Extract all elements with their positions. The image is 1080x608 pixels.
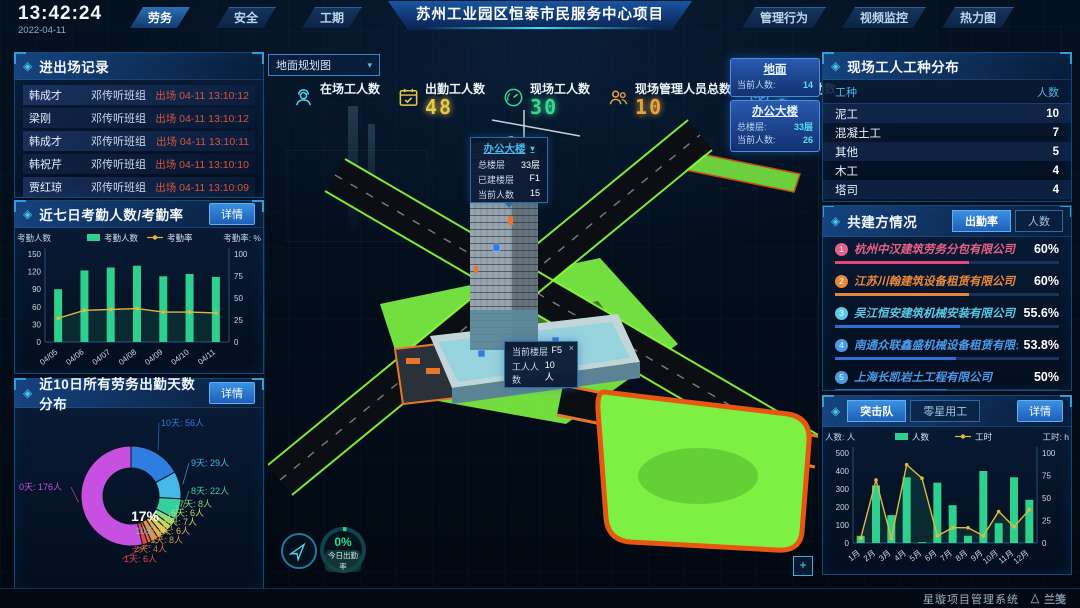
diamond-icon: ◈: [831, 404, 840, 418]
worker-type-table: 泥工10混凝土工7其他5木工4塔司4: [823, 104, 1071, 199]
system-name: 星璇项目管理系统: [923, 591, 1019, 607]
building-popup[interactable]: 办公大楼 ▾ 总楼层33层 已建楼层F1 当前人数15: [470, 137, 548, 203]
svg-text:04/11: 04/11: [196, 347, 217, 366]
fullscreen-expand-icon[interactable]: +: [793, 556, 813, 576]
partner-name: 吴江恒安建筑机械安装有限公司: [854, 305, 1018, 321]
svg-text:8月: 8月: [954, 548, 969, 563]
table-row: 其他5: [823, 142, 1071, 161]
teams-tab-突击队[interactable]: 突击队: [847, 400, 906, 422]
panel-header: ◈ 突击队零星用工 详情: [823, 396, 1071, 427]
worker-count: 4: [1053, 165, 1059, 177]
calendar-check-icon: [397, 86, 420, 109]
progress-fill: [835, 389, 947, 391]
panel-teams-chart: ◈ 突击队零星用工 详情 01002003004005000255075100人…: [822, 395, 1072, 575]
partner-value: 53.8%: [1024, 338, 1059, 352]
progress-track: [835, 357, 1059, 360]
info-row: 当前人数:14: [737, 79, 813, 92]
progress-fill: [835, 293, 969, 296]
record-name: 贾红琼: [29, 179, 91, 195]
field-shade: [638, 448, 758, 504]
table-row: 塔司4: [823, 180, 1071, 199]
svg-text:500: 500: [836, 449, 850, 458]
rank-badge: 2: [835, 275, 848, 288]
svg-text:100: 100: [234, 250, 248, 259]
floor-popup[interactable]: × 当前楼层F5 工人人数10人: [504, 341, 578, 388]
svg-text:50: 50: [234, 294, 243, 303]
svg-text:04/08: 04/08: [117, 347, 139, 367]
svg-text:75: 75: [234, 272, 243, 281]
svg-text:0: 0: [845, 539, 850, 548]
footer-bar: 星璇项目管理系统 兰笺: [0, 588, 1080, 608]
svg-text:100: 100: [1042, 449, 1056, 458]
panel-header: ◈ 近七日考勤人数/考勤率 详情: [15, 201, 263, 228]
record-event: 出场 04-11 13:10:10: [155, 157, 249, 172]
worker-type: 混凝土工: [835, 125, 881, 141]
record-row: 韩祝芹邓传听班组出场 04-11 13:10:10: [23, 154, 255, 174]
svg-text:04/09: 04/09: [143, 347, 165, 367]
worker-marker[interactable]: [478, 350, 485, 357]
partner-row: 3吴江恒安建筑机械安装有限公司55.6%: [835, 305, 1059, 328]
rank-badge: 4: [835, 339, 848, 352]
info-row: 当前人数:26: [737, 134, 813, 147]
page-title: 苏州工业园区恒泰市民服务中心项目: [388, 1, 692, 30]
clock-time: 13:42:24: [18, 3, 102, 25]
hoist: [508, 216, 513, 225]
panel-title: 共建方情况: [847, 211, 945, 231]
worker-marker[interactable]: [493, 244, 500, 251]
divider: [264, 50, 265, 588]
svg-text:150: 150: [28, 250, 42, 259]
compass-arrow-icon: [288, 540, 310, 562]
gauge-value: 0%: [324, 535, 362, 549]
map-view-dropdown[interactable]: 地面规划图 ▾: [268, 54, 380, 76]
svg-text:100: 100: [836, 521, 850, 530]
panel-title: 近七日考勤人数/考勤率: [39, 204, 202, 224]
panel-title: 进出场记录: [39, 56, 255, 76]
svg-text:04/07: 04/07: [91, 347, 113, 367]
worker-count: 7: [1053, 127, 1059, 139]
partners-list: 1杭州中汉建筑劳务分包有限公司60%2江苏川翰建筑设备租赁有限公司60%3吴江恒…: [823, 237, 1071, 391]
crane-jib: [492, 120, 580, 136]
table-row: 泥工10: [823, 104, 1071, 123]
panel-title: 近10日所有劳务出勤天数分布: [39, 373, 202, 413]
svg-text:25: 25: [234, 316, 243, 325]
partner-name: 江苏川翰建筑设备租赁有限公司: [854, 273, 1028, 289]
clock: 13:42:24 2022-04-11: [18, 3, 102, 36]
popup-row: 总楼层33层: [471, 157, 547, 172]
managers-icon: [607, 86, 630, 109]
tab-视频监控[interactable]: 视频监控: [842, 7, 926, 28]
svg-text:0: 0: [1042, 539, 1047, 548]
stat-出勤工人数: 出勤工人数48: [397, 80, 485, 118]
panel-attendance-days-distribution: ◈ 近10日所有劳务出勤天数分布 详情 10天: 56人9天: 29人8天: 2…: [14, 378, 264, 592]
diamond-icon: ◈: [23, 386, 32, 400]
panel-partners: ◈ 共建方情况 出勤率人数 1杭州中汉建筑劳务分包有限公司60%2江苏川翰建筑设…: [822, 205, 1072, 391]
equipment: [406, 358, 420, 364]
svg-text:7月: 7月: [939, 548, 954, 563]
svg-text:04/10: 04/10: [169, 347, 191, 367]
map-view-value: 地面规划图: [276, 57, 331, 73]
diamond-icon: ◈: [23, 59, 32, 73]
record-row: 梁刚邓传听班组出场 04-11 13:10:12: [23, 108, 255, 128]
nav-tabs-right: 管理行为视频监控热力图: [742, 7, 1014, 28]
tab-劳务[interactable]: 劳务: [130, 7, 190, 28]
info-box-title: 地面: [737, 61, 813, 77]
svg-text:75: 75: [1042, 472, 1051, 481]
progress-track: [835, 389, 1059, 391]
worker-count: 5: [1053, 146, 1059, 158]
progress-fill: [835, 357, 956, 360]
tab-管理行为[interactable]: 管理行为: [742, 7, 826, 28]
popup-row: 已建楼层F1: [471, 172, 547, 187]
svg-text:0天: 176人: 0天: 176人: [19, 482, 62, 492]
partner-row: 1杭州中汉建筑劳务分包有限公司60%: [835, 241, 1059, 264]
progress-fill: [835, 261, 969, 264]
svg-text:04/06: 04/06: [64, 347, 86, 367]
progress-track: [835, 261, 1059, 264]
svg-text:90: 90: [32, 285, 41, 294]
svg-text:考勤人数: 考勤人数: [17, 233, 52, 243]
panel-entry-exit-records: ◈ 进出场记录 韩成才邓传听班组出场 04-11 13:10:12梁刚邓传听班组…: [14, 52, 264, 198]
popup-arrow: [504, 202, 514, 208]
worker-type: 泥工: [835, 106, 858, 122]
svg-text:2月: 2月: [862, 548, 877, 563]
record-row: 韩成才邓传听班组出场 04-11 13:10:12: [23, 85, 255, 105]
record-event: 出场 04-11 13:10:12: [155, 111, 249, 126]
logo-text: 兰笺: [1044, 591, 1066, 607]
partner-row: 4南通众联鑫盛机械设备租赁有限公司53.8%: [835, 337, 1059, 360]
partners-tab-出勤率[interactable]: 出勤率: [952, 210, 1011, 232]
partner-name: 杭州中汉建筑劳务分包有限公司: [854, 241, 1028, 257]
caret-down-icon[interactable]: ▾: [367, 60, 372, 71]
panel-header: ◈ 近10日所有劳务出勤天数分布 详情: [15, 379, 263, 408]
info-box-title: 办公大楼: [737, 103, 813, 119]
svg-text:人数: 人: 人数: 人: [825, 432, 856, 442]
stat-现场管理人员总数: 现场管理人员总数10: [607, 80, 731, 118]
records-list: 韩成才邓传听班组出场 04-11 13:10:12梁刚邓传听班组出场 04-11…: [15, 80, 263, 197]
record-row: 贾红琼邓传听班组出场 04-11 13:10:09: [23, 177, 255, 197]
stat-现场工人数: 现场工人数30: [502, 80, 590, 118]
clock-date: 2022-04-11: [18, 25, 102, 36]
today-attendance-gauge: 0% 今日出勤率: [320, 527, 366, 573]
info-box-ground: 地面 当前人数:14: [730, 58, 820, 97]
panel-header: ◈ 共建方情况 出勤率人数: [823, 206, 1071, 237]
record-row: 韩成才邓传听班组出场 04-11 13:10:11: [23, 131, 255, 151]
rank-badge: 1: [835, 243, 848, 256]
record-name: 梁刚: [29, 110, 91, 126]
svg-text:25: 25: [1042, 517, 1051, 526]
progress-track: [835, 325, 1059, 328]
popup-row: 工人人数10人: [505, 359, 577, 387]
panel-worker-type-distribution: ◈ 现场工人工种分布 工种 人数 泥工10混凝土工7其他5木工4塔司4: [822, 52, 1072, 202]
caret-down-icon[interactable]: ▾: [530, 144, 534, 153]
gauge-icon: [502, 86, 525, 109]
record-name: 韩祝芹: [29, 156, 91, 172]
building-popup-name: 办公大楼: [483, 141, 525, 156]
record-group: 邓传听班组: [91, 110, 155, 126]
svg-text:400: 400: [836, 467, 850, 476]
hoist: [474, 266, 478, 273]
top-bar: 13:42:24 2022-04-11 劳务安全工期 苏州工业园区恒泰市民服务中…: [0, 0, 1080, 38]
svg-text:5月: 5月: [908, 548, 923, 563]
svg-text:考勤率: %: 考勤率: %: [223, 233, 261, 243]
svg-text:工时: 工时: [975, 432, 993, 442]
panel-header: ◈ 进出场记录: [15, 53, 263, 80]
svg-text:考勤人数: 考勤人数: [104, 233, 139, 243]
svg-text:工时: h: 工时: h: [1043, 432, 1070, 442]
svg-text:1天: 6人: 1天: 6人: [124, 554, 157, 564]
svg-text:10天: 56人: 10天: 56人: [161, 418, 204, 428]
stat-value: 48: [425, 97, 485, 118]
brand-logo: 兰笺: [1029, 591, 1066, 607]
svg-text:考勤率: 考勤率: [167, 233, 193, 243]
partner-value: 55.6%: [1024, 306, 1059, 320]
svg-text:30: 30: [32, 320, 41, 329]
record-group: 邓传听班组: [91, 133, 156, 149]
stat-在场工人数: 在场工人数: [292, 80, 380, 118]
svg-text:04/05: 04/05: [38, 347, 60, 367]
detail-button[interactable]: 详情: [209, 203, 255, 225]
record-group: 邓传听班组: [91, 179, 155, 195]
panel-attendance-chart: ◈ 近七日考勤人数/考勤率 详情 03060901201500255075100…: [14, 200, 264, 374]
equipment: [426, 368, 440, 374]
diamond-icon: ◈: [23, 207, 32, 221]
info-box-office-tower: 办公大楼 总楼层:33层 当前人数:26: [730, 100, 820, 152]
diamond-icon: ◈: [831, 214, 840, 228]
svg-text:120: 120: [28, 268, 42, 277]
record-name: 韩成才: [29, 133, 91, 149]
attendance-bar-line-chart[interactable]: 03060901201500255075100考勤人数考勤率: %考勤人数考勤率…: [15, 228, 263, 370]
table-row: 木工4: [823, 161, 1071, 180]
svg-text:4月: 4月: [893, 548, 908, 563]
partner-row: 2江苏川翰建筑设备租赁有限公司60%: [835, 273, 1059, 296]
teams-tab-零星用工[interactable]: 零星用工: [910, 400, 980, 422]
partner-value: 60%: [1034, 242, 1059, 256]
tab-安全[interactable]: 安全: [216, 7, 276, 28]
detail-button[interactable]: 详情: [1017, 400, 1063, 422]
worker-type: 塔司: [835, 182, 858, 198]
compass-control[interactable]: [281, 533, 317, 569]
nav-tabs-left: 劳务安全工期: [130, 7, 362, 28]
svg-text:200: 200: [836, 503, 850, 512]
svg-text:0: 0: [37, 338, 42, 347]
partners-tab-人数[interactable]: 人数: [1015, 210, 1063, 232]
worker-count: 10: [1046, 108, 1059, 120]
table-row: 混凝土工7: [823, 123, 1071, 142]
panel-title: 现场工人工种分布: [847, 56, 1063, 76]
svg-text:50: 50: [1042, 494, 1051, 503]
col-type: 工种: [835, 84, 857, 100]
record-event: 出场 04-11 13:10:12: [155, 88, 249, 103]
tab-热力图[interactable]: 热力图: [942, 7, 1014, 28]
teams-tabs: 突击队零星用工: [847, 400, 1010, 422]
logo-icon: [1029, 593, 1041, 605]
record-event: 出场 04-11 13:10:11: [156, 134, 249, 149]
worker-type: 木工: [835, 163, 858, 179]
dashboard: 13:42:24 2022-04-11 劳务安全工期 苏州工业园区恒泰市民服务中…: [0, 0, 1080, 608]
svg-text:300: 300: [836, 485, 850, 494]
close-icon[interactable]: ×: [569, 343, 574, 353]
partner-name: 上海长凯岩土工程有限公司: [854, 369, 1028, 385]
svg-text:3月: 3月: [877, 548, 892, 563]
rank-badge: 3: [835, 307, 848, 320]
stat-value: 10: [635, 97, 731, 118]
svg-text:60: 60: [32, 303, 41, 312]
progress-fill: [835, 325, 960, 328]
svg-text:12月: 12月: [1012, 548, 1031, 566]
worker-count: 4: [1053, 184, 1059, 196]
record-name: 韩成才: [29, 87, 91, 103]
stat-value: 30: [530, 97, 590, 118]
rank-badge: 5: [835, 371, 848, 384]
panel-header: ◈ 现场工人工种分布: [823, 53, 1071, 80]
popup-row: 当前楼层F5: [505, 344, 577, 359]
building-popup-title[interactable]: 办公大楼 ▾: [471, 138, 547, 157]
record-group: 邓传听班组: [91, 87, 155, 103]
diamond-icon: ◈: [831, 59, 840, 73]
record-event: 出场 04-11 13:10:09: [155, 180, 249, 195]
worker-type: 其他: [835, 144, 858, 160]
svg-text:0: 0: [234, 338, 239, 347]
progress-track: [835, 293, 1059, 296]
tab-工期[interactable]: 工期: [302, 7, 362, 28]
svg-text:8天: 22人: 8天: 22人: [191, 486, 229, 496]
popup-row: 当前人数15: [471, 187, 547, 202]
col-count: 人数: [1037, 84, 1059, 100]
svg-text:人数: 人数: [912, 432, 930, 442]
partners-tabs: 出勤率人数: [952, 210, 1063, 232]
record-group: 邓传听班组: [91, 156, 155, 172]
worker-icon: [292, 86, 315, 109]
info-row: 总楼层:33层: [737, 121, 813, 134]
svg-text:9天: 29人: 9天: 29人: [191, 458, 229, 468]
gauge-label: 今日出勤率: [325, 550, 361, 572]
partner-value: 50%: [1034, 370, 1059, 384]
stat-label: 在场工人数: [320, 80, 380, 97]
page-title-text: 苏州工业园区恒泰市民服务中心项目: [416, 7, 664, 23]
partner-value: 60%: [1034, 274, 1059, 288]
partner-name: 南通众联鑫盛机械设备租赁有限公司: [854, 337, 1018, 353]
svg-text:6月: 6月: [923, 548, 938, 563]
attendance-days-donut-chart[interactable]: 10天: 56人9天: 29人8天: 22人7天: 8人6天: 6人5天: 7人…: [15, 408, 263, 588]
svg-text:1月: 1月: [847, 548, 862, 563]
detail-button[interactable]: 详情: [209, 382, 255, 404]
partner-row: 5上海长凯岩土工程有限公司50%: [835, 369, 1059, 391]
teams-bar-line-chart[interactable]: 01002003004005000255075100人数: 人工时: h人数工时…: [823, 427, 1071, 571]
table-header: 工种 人数: [823, 80, 1071, 104]
